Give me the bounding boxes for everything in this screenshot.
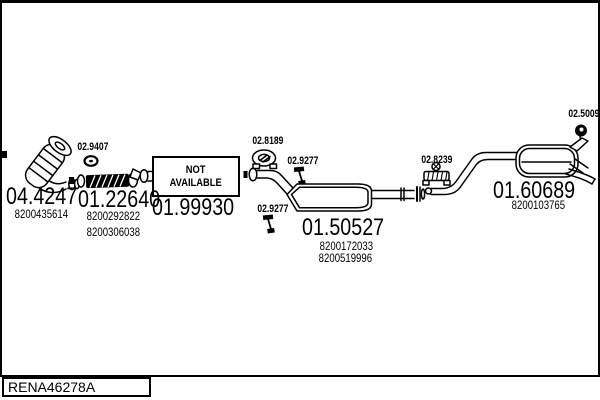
fitting-number-flange-gasket: 02.8189 — [248, 136, 284, 147]
centre-muffler-drawing — [287, 184, 414, 211]
rubber-hanger-icon-upper — [294, 166, 306, 185]
gasket-ring-icon — [85, 156, 98, 166]
frame-tick — [1, 151, 7, 158]
oe-ref-rear-muffler: 8200103765 — [503, 199, 573, 211]
fitting-number-gasket-ring: 02.9407 — [73, 142, 109, 153]
rubber-hanger-icon-lower — [263, 214, 275, 233]
fitting-number-hanger-lower: 02.9277 — [253, 204, 289, 215]
rubber-mount-icon — [575, 125, 587, 140]
pipe-flange-drawing — [244, 168, 257, 181]
diagram-code: RENA46278A — [8, 379, 95, 395]
oe-ref-centre-muffler-2: 8200519996 — [310, 252, 380, 264]
not-available-line1: NOT — [186, 164, 206, 177]
fitting-number-hanger-upper: 02.9277 — [283, 156, 319, 167]
flange-gasket-icon — [253, 150, 277, 169]
oe-ref-flex-section-1: 8200292822 — [78, 210, 148, 222]
centre-muffler-inlet-pipe — [257, 171, 293, 195]
diagram-code-box: RENA46278A — [2, 377, 151, 397]
pipe-joint-drawing — [417, 187, 432, 201]
fitting-number-rubber-mount: 02.5009 — [564, 109, 600, 120]
part-number-centre-muffler: 01.50527 — [302, 216, 402, 240]
fitting-number-pipe-clamp: 02.8239 — [417, 155, 453, 166]
part-number-unavailable: 01.99930 — [152, 196, 252, 220]
oe-ref-flex-section-2: 8200306038 — [78, 226, 148, 238]
oe-ref-front-pipe: 8200435614 — [6, 208, 76, 220]
